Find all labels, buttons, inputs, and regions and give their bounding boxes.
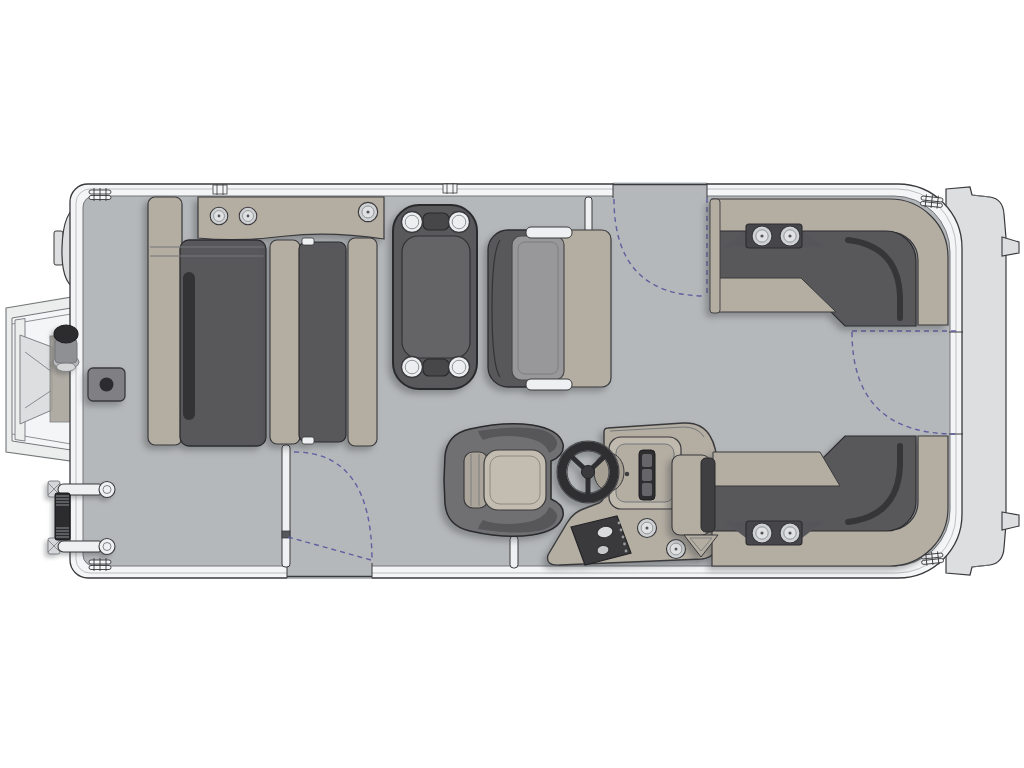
cup-holder: [239, 207, 257, 225]
side-gate-post: [585, 197, 592, 233]
aft-facing-bench: [488, 227, 611, 390]
table-handle-bottom: [423, 359, 449, 376]
bow-boarding-gate: [6, 296, 78, 462]
aft-bench-armrest-bottom: [526, 379, 572, 390]
bow-lounge-seat-shadow: [183, 272, 195, 420]
stern-lounge-top-endcap: [710, 199, 720, 313]
facing-bench: [270, 238, 377, 446]
aft-bench-cushion: [512, 236, 564, 380]
aft-bench-armrest-top: [526, 227, 572, 238]
cocktail-table: [393, 205, 477, 389]
steering-wheel: [557, 441, 619, 503]
cup-holder: [780, 226, 800, 246]
captain-chair: [444, 424, 563, 537]
table-cup-holder: [402, 357, 423, 378]
bow-light-pylon: [53, 325, 79, 372]
mid-gate-gap: [287, 563, 372, 579]
stern-lounge-bottom-seat-edge: [713, 452, 840, 486]
cup-holder: [358, 202, 377, 221]
table-handle-top: [423, 213, 449, 230]
lounge-end-bolster: [701, 458, 715, 532]
cup-holder: [752, 226, 772, 246]
side-gate-gap: [613, 183, 707, 199]
cup-holder: [210, 207, 228, 225]
table-cup-holder: [449, 212, 470, 233]
rail-notch-1: [213, 184, 227, 195]
ladder-grip: [55, 493, 70, 540]
facing-bench-base: [348, 238, 377, 446]
helm-cup-holder: [667, 540, 686, 559]
facing-bench-back: [270, 240, 300, 444]
table-cup-holder: [402, 212, 423, 233]
rail-notch-2: [443, 183, 457, 194]
port-stern-lounge: [672, 436, 948, 566]
helm-gate-post: [510, 536, 518, 568]
ladder-rung-bottom: [58, 541, 104, 552]
pontoon-floorplan: [0, 0, 1024, 768]
helm-cup-holder: [638, 519, 657, 538]
table-cup-holder: [449, 357, 470, 378]
deck-pad-socket: [100, 378, 114, 392]
cup-holder: [780, 523, 800, 543]
starboard-stern-lounge: [710, 199, 948, 326]
cup-holder: [752, 523, 772, 543]
bow-lounge-backrest: [148, 197, 182, 445]
facing-bench-seat: [299, 242, 346, 442]
table-top: [402, 236, 470, 358]
mid-gate-door-open: [282, 445, 290, 567]
